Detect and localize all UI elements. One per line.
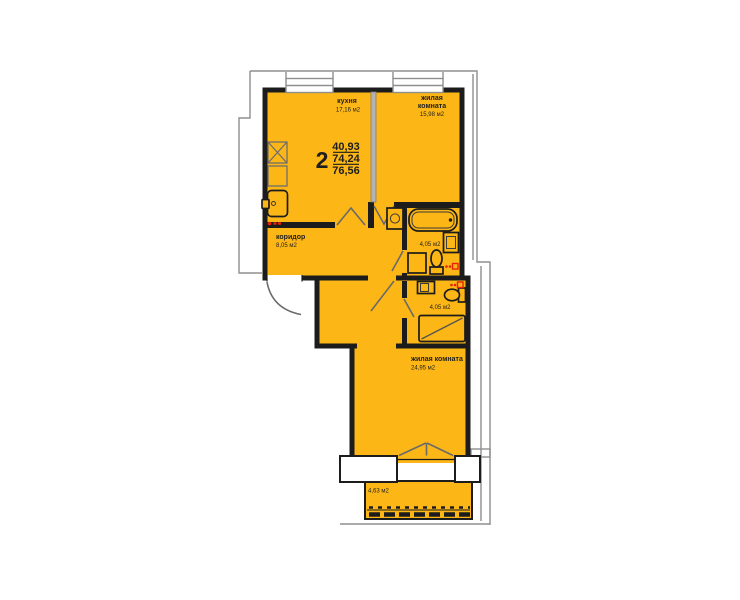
- entry-door-arc: [267, 282, 301, 315]
- bathroom2-area: 4,05 м2: [430, 305, 451, 311]
- balcony-area: 4,63 м2: [368, 489, 389, 495]
- kitchen-window: [286, 79, 333, 93]
- bathroom1-area: 4,05 м2: [420, 242, 441, 248]
- kitchen-living-partition: [371, 92, 376, 202]
- living-room-2-block: [352, 346, 468, 460]
- floor-plan: 2 40,93 74,24 76,56 кухня 17,16 м2 жилая…: [0, 0, 740, 600]
- toilet1-icon: [430, 250, 443, 274]
- washbasin2-icon: [418, 282, 435, 294]
- cabinet-icon: [408, 253, 426, 273]
- living1-label-line2: комната: [418, 103, 446, 110]
- washbasin1-icon: [444, 233, 459, 253]
- living-area-value: 40,93: [332, 141, 360, 153]
- entry-opening: [267, 275, 302, 282]
- washing-machine-icon: [387, 208, 403, 229]
- living-room-window: [393, 79, 443, 93]
- floor-plan-page: 2 40,93 74,24 76,56 кухня 17,16 м2 жилая…: [0, 0, 740, 600]
- apartment-area-value: 74,24: [332, 153, 360, 165]
- kitchen-label: кухня: [337, 98, 357, 105]
- rooms-count: 2: [316, 147, 329, 173]
- total-area-value: 76,56: [332, 165, 360, 177]
- shower-icon: [419, 316, 465, 342]
- kitchen-area: 17,16 м2: [336, 108, 361, 114]
- apartment-info: 2 40,93 74,24 76,56: [316, 141, 361, 177]
- living2-label: жилая комната: [410, 356, 463, 363]
- living1-label-line1: жилая: [420, 95, 443, 102]
- corridor-area: 8,05 м2: [276, 243, 297, 249]
- living1-area: 15,98 м2: [420, 112, 445, 118]
- corridor-label: коридор: [276, 234, 305, 241]
- toilet2-icon: [445, 288, 466, 302]
- upper-rooms-block: [265, 90, 462, 278]
- bathtub-icon: [409, 209, 457, 231]
- living2-area: 24,95 м2: [411, 366, 436, 372]
